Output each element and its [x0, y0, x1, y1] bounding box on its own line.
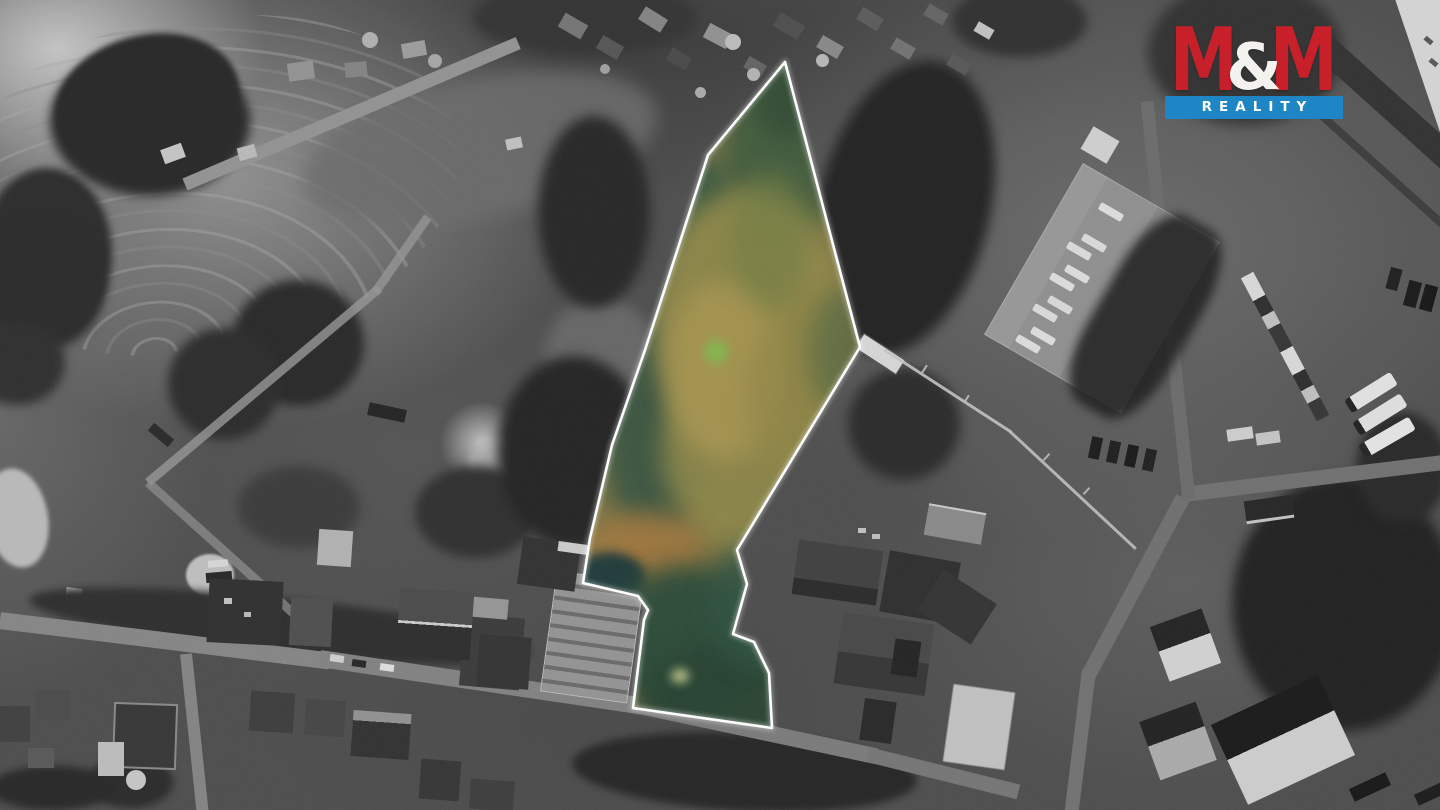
noise-overlay [0, 0, 1440, 810]
logo-ampersand: & [1226, 37, 1282, 99]
mm-reality-logo: M & M REALITY [1165, 30, 1343, 119]
aerial-photo: M & M REALITY [0, 0, 1440, 810]
logo-mm-row: M & M [1165, 30, 1343, 96]
